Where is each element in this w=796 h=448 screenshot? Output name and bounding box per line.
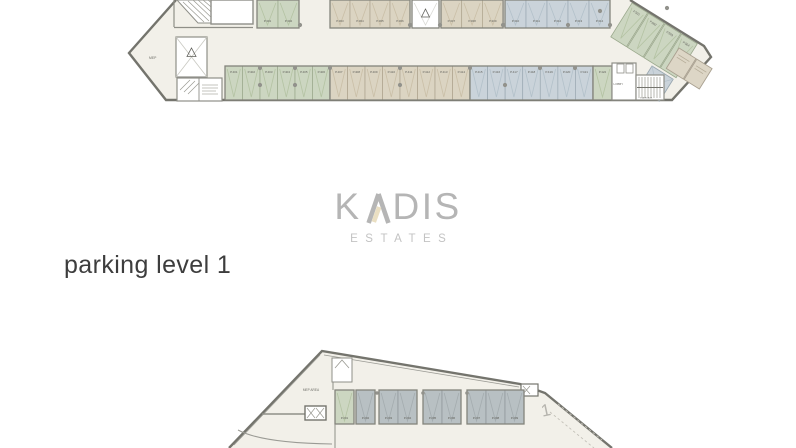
stall-label: P.314	[596, 19, 604, 23]
stall-label: P.306	[396, 19, 404, 23]
parking-stall	[505, 0, 526, 28]
elevator-room	[211, 0, 253, 24]
stall-label: P.418	[528, 70, 536, 74]
column-dot	[465, 391, 469, 395]
stall-label: P.313	[575, 19, 583, 23]
stall-label: P.310	[512, 19, 520, 23]
stall-label: P.309	[489, 19, 497, 23]
stall-label: P.417	[510, 70, 518, 74]
elevator-cab	[626, 64, 633, 73]
parking-stall	[257, 0, 278, 28]
stall-label: P.403	[265, 70, 273, 74]
stall-label: P.402	[248, 70, 256, 74]
column-dot	[328, 66, 332, 70]
elevator-cab	[617, 64, 624, 73]
stall-label: P.408	[353, 70, 361, 74]
column-dot	[293, 83, 297, 87]
stall-label: P.409	[370, 70, 378, 74]
column-dot	[665, 6, 669, 10]
lobby-label: LOBBY	[614, 82, 624, 86]
stall-label: P.204	[404, 416, 412, 420]
brand-letters-dis: DIS	[393, 188, 462, 225]
mep-area-label: MEP AREA	[303, 388, 320, 392]
stall-label: P.312	[554, 19, 562, 23]
brand-name: K DIS	[334, 188, 461, 225]
stall-label: P.203	[385, 416, 393, 420]
column-dot	[293, 66, 297, 70]
parking-stall	[568, 0, 589, 28]
ramp-room	[176, 37, 207, 77]
stall-label: P.305	[376, 19, 384, 23]
column-dot	[398, 66, 402, 70]
stall-label: P.208	[492, 416, 500, 420]
column-dot	[501, 23, 505, 27]
stall-label: P.413	[440, 70, 448, 74]
staircase-label: STAIRCASE	[640, 97, 653, 100]
parking-stall	[589, 0, 610, 28]
stall-label: P.205	[429, 416, 437, 420]
stall-label: P.420	[563, 70, 571, 74]
stall-label: P.407	[335, 70, 343, 74]
column-dot	[398, 83, 402, 87]
stall-label: P.421	[580, 70, 588, 74]
brand-logo: K DIS ESTATES	[0, 188, 796, 245]
column-dot	[258, 66, 262, 70]
column-dot	[421, 391, 425, 395]
page-title: parking level 1	[64, 251, 231, 280]
column-dot	[258, 83, 262, 87]
stall-label: P.207	[473, 416, 481, 420]
parking-stall	[412, 0, 439, 28]
parking-stall	[547, 0, 568, 28]
stall-label: P.416	[493, 70, 501, 74]
column-dot	[598, 9, 602, 13]
column-dot	[408, 23, 412, 27]
brand-letter-k: K	[334, 188, 361, 225]
column-dot	[468, 66, 472, 70]
column-dot	[298, 23, 302, 27]
stall-label: P.422	[599, 70, 607, 74]
stall-label: P.302	[285, 19, 293, 23]
stall-label: P.206	[448, 416, 456, 420]
column-dot	[538, 66, 542, 70]
stall-label: P.304	[356, 19, 364, 23]
stylized-a-glyph	[365, 193, 392, 224]
stall-label: P.202	[362, 416, 370, 420]
column-dot	[438, 23, 442, 27]
stall-label: P.410	[388, 70, 396, 74]
stall-label: P.307	[448, 19, 456, 23]
stall-label: P.201	[341, 416, 349, 420]
stall-label: P.301	[264, 19, 272, 23]
stall-label: P.308	[468, 19, 476, 23]
stall-label: P.406	[318, 70, 326, 74]
column-dot	[573, 66, 577, 70]
utility-rooms	[177, 78, 222, 101]
stall-label: P.412	[423, 70, 431, 74]
parking-stall	[526, 0, 547, 28]
stall-label: P.414	[458, 70, 466, 74]
stall-label: P.311	[533, 19, 541, 23]
stall-label: P.209	[511, 416, 519, 420]
stall-label: P.404	[283, 70, 291, 74]
stall-label: P.415	[475, 70, 483, 74]
column-dot	[503, 83, 507, 87]
bottom-floor-plan: MEP AREA P.201P.202P.203P.204P.205P.206P…	[0, 344, 796, 448]
brochure-page: MEP P.301P.302P.303P.304P.305P.306P.307P…	[0, 0, 796, 448]
stall-label: P.401	[230, 70, 238, 74]
parking-stall-row: P.201P.202P.203P.204P.205P.206P.207P.208…	[335, 390, 524, 424]
column-dot	[375, 391, 379, 395]
column-dot	[566, 23, 570, 27]
mep-room-label: MEP	[149, 56, 157, 60]
stall-label: P.405	[300, 70, 308, 74]
brand-subtitle: ESTATES	[343, 233, 454, 245]
stall-label: P.419	[545, 70, 553, 74]
stall-label: P.303	[336, 19, 344, 23]
top-floor-plan: MEP P.301P.302P.303P.304P.305P.306P.307P…	[0, 0, 796, 118]
column-dot	[608, 23, 612, 27]
stall-label: P.411	[405, 70, 413, 74]
parking-stall	[278, 0, 299, 28]
